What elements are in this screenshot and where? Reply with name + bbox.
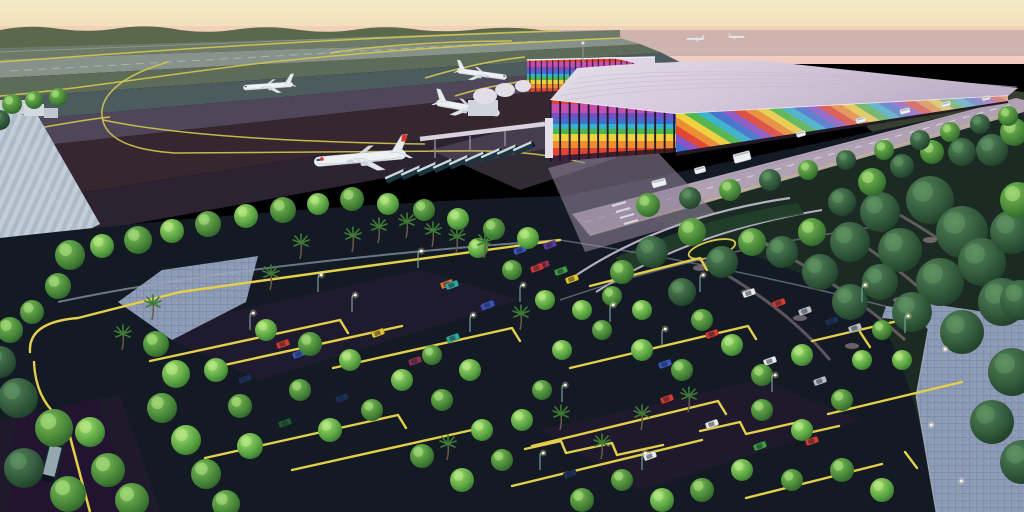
tree-highlight <box>913 132 921 140</box>
lamp-head <box>907 315 910 318</box>
tree-canopy <box>948 138 976 166</box>
plane-engine <box>738 37 739 38</box>
tree-canopy <box>35 409 73 447</box>
tree-canopy <box>318 418 342 442</box>
tree <box>948 138 976 166</box>
tree-highlight <box>462 362 471 371</box>
tree-highlight <box>877 142 885 150</box>
tree-highlight <box>867 268 882 283</box>
tree-canopy <box>289 379 311 401</box>
rendering-canvas: Aerial rendering of a tropical airport t… <box>0 0 1024 512</box>
tree-canopy <box>998 106 1018 126</box>
tree-canopy <box>890 154 914 178</box>
tree-highlight <box>207 361 217 371</box>
tree-canopy <box>668 278 696 306</box>
tree-highlight <box>614 472 623 481</box>
tree-canopy <box>940 122 960 142</box>
tree-canopy <box>459 359 481 381</box>
tree-highlight <box>1001 108 1009 116</box>
tree-highlight <box>40 413 56 429</box>
tree <box>413 199 435 221</box>
tree <box>307 193 329 215</box>
tree <box>690 478 714 502</box>
tree-highlight <box>640 240 653 253</box>
lamp-head <box>564 384 567 387</box>
tree-canopy <box>610 260 634 284</box>
tree-highlight <box>710 250 723 263</box>
tree-highlight <box>807 258 822 273</box>
tree-canopy <box>270 197 296 223</box>
tree-canopy <box>759 169 781 191</box>
path-patch <box>845 343 859 349</box>
tree-highlight <box>538 292 546 300</box>
tree-canopy <box>471 419 493 441</box>
tree-highlight <box>742 231 754 243</box>
tree-canopy <box>307 193 329 215</box>
tree-highlight <box>595 322 603 330</box>
tree-canopy <box>160 219 184 243</box>
tree-highlight <box>120 487 134 501</box>
tree-highlight <box>923 264 943 284</box>
tree <box>631 339 653 361</box>
tree <box>339 349 361 371</box>
tree-canopy <box>830 458 854 482</box>
tree-highlight <box>866 197 883 214</box>
tree-canopy <box>237 433 263 459</box>
tree <box>611 469 633 491</box>
tree-highlight <box>380 196 389 205</box>
canopy-dome <box>495 83 515 97</box>
tree-highlight <box>128 229 140 241</box>
tree-highlight <box>342 352 351 361</box>
tree-canopy <box>611 469 633 491</box>
lamp-head <box>522 284 525 287</box>
tree-canopy <box>552 340 572 360</box>
tree <box>471 419 493 441</box>
tree <box>892 350 912 370</box>
tree-canopy <box>862 264 898 300</box>
tree-highlight <box>199 214 210 225</box>
tree-canopy <box>377 193 399 215</box>
tree-highlight <box>258 322 267 331</box>
tree-highlight <box>834 392 843 401</box>
tree-canopy <box>798 160 818 180</box>
tree <box>998 106 1018 126</box>
tree-canopy <box>970 114 990 134</box>
lamp-head <box>612 304 615 307</box>
tree-highlight <box>450 211 459 220</box>
lamp-head <box>944 348 947 351</box>
tree-highlight <box>613 263 623 273</box>
tree-highlight <box>231 397 241 407</box>
tree-canopy <box>791 344 813 366</box>
tree-canopy <box>25 91 43 109</box>
tree-canopy <box>391 369 413 391</box>
tree <box>35 409 73 447</box>
tree-highlight <box>943 124 951 132</box>
tree-canopy <box>171 425 201 455</box>
tree-canopy <box>858 168 886 196</box>
tree-canopy <box>422 345 442 365</box>
tree <box>828 188 856 216</box>
tree-canopy <box>162 360 190 388</box>
tree-canopy <box>678 218 706 246</box>
tree <box>4 448 44 488</box>
tree-highlight <box>693 481 703 491</box>
tree-highlight <box>913 182 933 202</box>
tree <box>832 284 868 320</box>
tree-canopy <box>361 399 383 421</box>
tree <box>483 218 505 240</box>
tree-highlight <box>52 90 60 98</box>
tree-highlight <box>832 191 844 203</box>
tree-highlight <box>976 405 994 423</box>
tree-canopy <box>798 218 826 246</box>
tree-canopy <box>535 290 555 310</box>
tree <box>860 192 900 232</box>
tree <box>798 160 818 180</box>
tree <box>610 260 634 284</box>
tree-canopy <box>870 478 894 502</box>
plane-cockpit <box>244 86 247 87</box>
tree <box>671 359 693 381</box>
tree-highlight <box>801 162 809 170</box>
tree-canopy <box>491 449 513 471</box>
tree <box>517 227 539 249</box>
tree-canopy <box>90 234 114 258</box>
tree <box>731 459 753 481</box>
tree <box>532 380 552 400</box>
tree-highlight <box>943 212 965 234</box>
tree <box>234 204 258 228</box>
tree <box>970 400 1014 444</box>
tree-canopy <box>632 300 652 320</box>
tree-highlight <box>893 157 903 167</box>
tree-canopy <box>671 359 693 381</box>
tree <box>830 458 854 482</box>
tree-highlight <box>416 202 425 211</box>
tree-highlight <box>635 302 643 310</box>
tree-highlight <box>784 472 793 481</box>
tree <box>636 193 660 217</box>
tree-highlight <box>855 352 863 360</box>
tree <box>340 187 364 211</box>
tree-canopy <box>502 260 522 280</box>
tree-highlight <box>28 93 36 101</box>
tree <box>831 389 853 411</box>
tree <box>228 394 252 418</box>
tree <box>798 218 826 246</box>
tree <box>162 360 190 388</box>
tree-canopy <box>831 389 853 411</box>
tree-highlight <box>682 190 691 199</box>
tree <box>766 236 798 268</box>
tree-canopy <box>255 319 277 341</box>
tree-canopy <box>719 179 741 201</box>
tree-canopy <box>830 222 870 262</box>
tree-canopy <box>339 349 361 371</box>
tree-highlight <box>505 262 513 270</box>
tree-canopy <box>75 417 105 447</box>
tree-highlight <box>292 382 301 391</box>
lamp-head <box>252 312 255 315</box>
tree <box>874 140 894 160</box>
plane-engine <box>261 87 265 89</box>
tree-highlight <box>301 335 311 345</box>
tree <box>391 369 413 391</box>
tree <box>298 332 322 356</box>
tree <box>450 468 474 492</box>
tree-highlight <box>946 315 964 333</box>
tree-canopy <box>791 419 813 441</box>
lamp-head <box>644 452 647 455</box>
canopy-dome <box>515 80 531 92</box>
tree <box>552 340 572 360</box>
tree-canopy <box>802 254 838 290</box>
tree-highlight <box>895 352 903 360</box>
tree-highlight <box>898 297 915 314</box>
tree-highlight <box>952 141 964 153</box>
tree <box>447 208 469 230</box>
tree <box>318 418 342 442</box>
tree-canopy <box>298 332 322 356</box>
tree-highlight <box>1006 445 1024 463</box>
tree-canopy <box>204 358 228 382</box>
tree <box>706 246 738 278</box>
plane-engine <box>736 38 737 39</box>
tree-canopy <box>874 140 894 160</box>
tree-highlight <box>674 362 683 371</box>
tree <box>147 393 177 423</box>
tree-highlight <box>79 420 92 433</box>
tree <box>535 290 555 310</box>
tree-canopy <box>852 350 872 370</box>
tree-highlight <box>762 172 771 181</box>
tree-canopy <box>143 331 169 357</box>
tree-highlight <box>833 461 843 471</box>
lamp-head <box>664 328 667 331</box>
plane-engine <box>695 40 697 41</box>
tree <box>862 264 898 300</box>
lamp-head <box>702 274 705 277</box>
tree-highlight <box>875 322 883 330</box>
tree-canopy <box>483 218 505 240</box>
tree <box>636 236 668 268</box>
tree-canopy <box>650 488 674 512</box>
lamp-head <box>472 314 475 317</box>
tree <box>679 187 701 209</box>
tree-canopy <box>892 292 932 332</box>
tree-highlight <box>605 288 613 296</box>
tree-highlight <box>862 171 874 183</box>
tree-canopy <box>751 364 773 386</box>
tree <box>719 179 741 201</box>
tree <box>422 345 442 365</box>
tree-highlight <box>754 402 763 411</box>
tree-highlight <box>770 240 783 253</box>
tree-canopy <box>49 88 67 106</box>
tree <box>361 399 383 421</box>
tree-canopy <box>4 448 44 488</box>
tree-canopy <box>636 236 668 268</box>
tree-canopy <box>431 389 453 411</box>
tree-highlight <box>653 491 663 501</box>
tree-highlight <box>166 363 178 375</box>
tree-highlight <box>873 481 883 491</box>
tree-highlight <box>1005 186 1020 201</box>
tree-highlight <box>836 227 853 244</box>
tree-canopy <box>55 240 85 270</box>
tree-canopy <box>340 187 364 211</box>
lamp-head <box>960 480 963 483</box>
tree-highlight <box>682 221 694 233</box>
tree <box>572 300 592 320</box>
lamp-head <box>774 374 777 377</box>
antenna-beacon <box>582 42 585 45</box>
tree <box>892 292 932 332</box>
tree-highlight <box>175 428 188 441</box>
tree-canopy <box>910 130 930 150</box>
tree-highlight <box>520 230 529 239</box>
tree-canopy <box>91 453 125 487</box>
tree-canopy <box>570 488 594 512</box>
tree <box>502 260 522 280</box>
tree <box>191 459 221 489</box>
tree-highlight <box>980 138 993 151</box>
tree <box>204 358 228 382</box>
tree <box>751 399 773 421</box>
tree-highlight <box>995 354 1015 374</box>
lamp-head <box>542 452 545 455</box>
tree-highlight <box>413 447 423 457</box>
tree-canopy <box>447 208 469 230</box>
tree-canopy <box>892 350 912 370</box>
tree-canopy <box>511 409 533 431</box>
tree <box>124 226 152 254</box>
tree <box>570 488 594 512</box>
tree-canopy <box>2 94 22 114</box>
tree <box>791 344 813 366</box>
tree <box>377 193 399 215</box>
tree <box>791 419 813 441</box>
tree-highlight <box>839 152 847 160</box>
tree-canopy <box>45 273 71 299</box>
tree-highlight <box>241 436 252 447</box>
tree <box>75 417 105 447</box>
lamp-head <box>930 424 933 427</box>
tree-highlight <box>5 96 13 104</box>
tree <box>20 300 44 324</box>
tree-canopy <box>751 399 773 421</box>
tree-highlight <box>884 233 902 251</box>
tree-canopy <box>631 339 653 361</box>
tree <box>270 197 296 223</box>
tree-highlight <box>535 382 543 390</box>
tree-highlight <box>4 383 21 400</box>
tree <box>289 379 311 401</box>
tree-canopy <box>195 211 221 237</box>
tree-highlight <box>23 303 33 313</box>
tree-highlight <box>216 493 228 505</box>
lamp-head <box>320 274 323 277</box>
tree-canopy <box>532 380 552 400</box>
tree <box>836 150 856 170</box>
tree-canopy <box>124 226 152 254</box>
tree-highlight <box>722 182 731 191</box>
tree-highlight <box>394 372 403 381</box>
tree <box>890 154 914 178</box>
tree-canopy <box>20 300 44 324</box>
tree <box>171 425 201 455</box>
tree <box>160 219 184 243</box>
tree <box>25 91 43 109</box>
tree-highlight <box>274 200 285 211</box>
tree <box>650 488 674 512</box>
tree-canopy <box>766 236 798 268</box>
tree-highlight <box>573 491 583 501</box>
tree <box>872 320 892 340</box>
tree <box>237 433 263 459</box>
tree-highlight <box>364 402 373 411</box>
tree <box>910 130 930 150</box>
tree-canopy <box>836 150 856 170</box>
tree <box>852 350 872 370</box>
tree-canopy <box>872 320 892 340</box>
tree <box>691 309 713 331</box>
tree-canopy <box>592 320 612 340</box>
tree-canopy <box>147 393 177 423</box>
tree <box>940 122 960 142</box>
tree <box>459 359 481 381</box>
tree-highlight <box>802 221 814 233</box>
tree-canopy <box>781 469 803 491</box>
tree <box>90 234 114 258</box>
tree-highlight <box>163 222 173 232</box>
entrance-pylon <box>545 118 553 158</box>
tree-highlight <box>794 422 803 431</box>
tree-highlight <box>794 347 803 356</box>
tree-highlight <box>724 337 733 346</box>
tree-canopy <box>517 227 539 249</box>
tree-highlight <box>672 281 684 293</box>
tree <box>759 169 781 191</box>
tree <box>668 278 696 306</box>
canopy-dome <box>473 88 497 104</box>
tree-canopy <box>413 199 435 221</box>
tree <box>45 273 71 299</box>
plane-engine <box>268 88 272 91</box>
tree-highlight <box>49 276 60 287</box>
tree <box>738 228 766 256</box>
lamp-head <box>864 284 867 287</box>
tree-highlight <box>965 244 985 264</box>
tree <box>49 88 67 106</box>
tree-highlight <box>310 196 319 205</box>
tree-highlight <box>93 237 103 247</box>
tree <box>751 364 773 386</box>
tree <box>91 453 125 487</box>
tree-canopy <box>410 444 434 468</box>
tree <box>802 254 838 290</box>
tree-highlight <box>425 347 433 355</box>
tree-canopy <box>234 204 258 228</box>
tree-highlight <box>151 396 164 409</box>
tree-highlight <box>343 190 353 200</box>
tree <box>858 168 886 196</box>
tree <box>870 478 894 502</box>
airport-rendering: Aerial rendering of a tropical airport t… <box>0 0 1024 512</box>
tree-canopy <box>860 192 900 232</box>
